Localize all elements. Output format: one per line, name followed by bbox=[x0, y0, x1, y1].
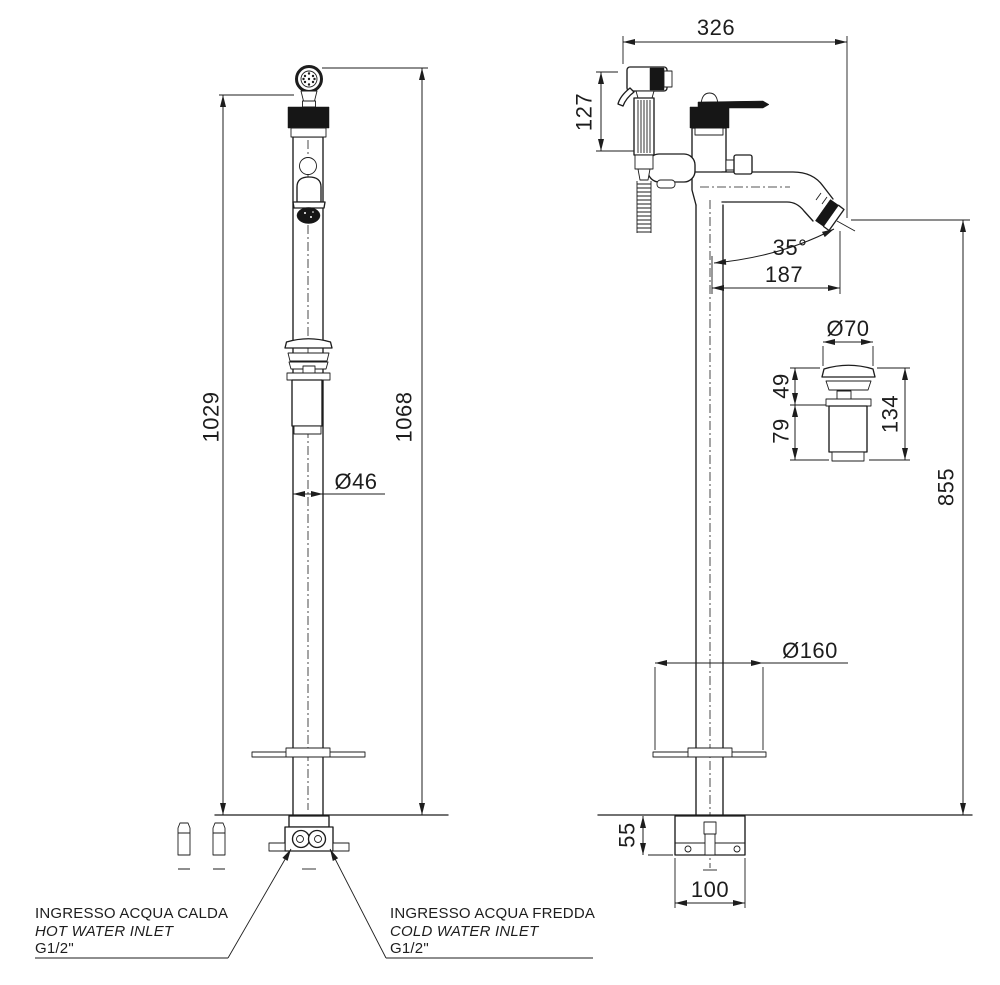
dim-base-cover-diameter: Ø160 bbox=[782, 638, 838, 663]
dim-drain-upper-height: 49 bbox=[769, 373, 794, 398]
front-escutcheon bbox=[252, 748, 365, 757]
dim-spout-reach: 187 bbox=[765, 262, 803, 287]
side-dimensions: 326 127 35° 187 855 Ø160 55 100 bbox=[572, 15, 970, 908]
cold-label-thread: G1/2" bbox=[390, 940, 429, 957]
drain-body bbox=[829, 406, 867, 452]
cold-leader-line bbox=[330, 849, 386, 958]
dim-base-width: 100 bbox=[691, 877, 729, 902]
front-base bbox=[269, 816, 349, 869]
side-escutcheon bbox=[653, 667, 766, 757]
side-cartridge-cap bbox=[690, 107, 729, 128]
front-handshower-icon bbox=[297, 67, 322, 108]
side-view: 326 127 35° 187 855 Ø160 55 100 bbox=[572, 15, 972, 908]
dim-overall-height: 1068 bbox=[392, 392, 417, 443]
lever-handle bbox=[698, 93, 769, 108]
drain-detail: Ø70 49 79 134 bbox=[769, 316, 910, 461]
front-cartridge-cap bbox=[288, 107, 329, 128]
cold-label-subtitle: COLD WATER INLET bbox=[390, 923, 540, 940]
hot-label-thread: G1/2" bbox=[35, 940, 74, 957]
dim-drain-lower-height: 79 bbox=[769, 418, 794, 443]
dim-overall-depth: 326 bbox=[697, 15, 735, 40]
dim-spout-angle: 35° bbox=[773, 235, 808, 260]
dim-base-height: 55 bbox=[615, 822, 640, 847]
drain-cap bbox=[822, 365, 875, 377]
side-spout bbox=[700, 172, 844, 231]
dim-height-to-shower-rest: 1029 bbox=[199, 392, 224, 443]
hot-label-title: INGRESSO ACQUA CALDA bbox=[35, 905, 228, 922]
cold-label-title: INGRESSO ACQUA FREDDA bbox=[390, 905, 595, 922]
side-handshower-icon bbox=[618, 67, 672, 233]
side-base bbox=[675, 816, 745, 870]
hot-leader-line bbox=[228, 849, 291, 958]
front-cap-collar bbox=[291, 128, 326, 137]
dim-spout-outlet-height: 855 bbox=[934, 468, 959, 506]
front-popup-waste bbox=[285, 339, 332, 434]
shower-bracket bbox=[648, 154, 695, 188]
drawing-canvas: 1029 1068 Ø46 bbox=[0, 0, 1000, 985]
dim-drain-cap-diameter: Ø70 bbox=[826, 316, 869, 341]
shower-hose-coil bbox=[637, 181, 651, 233]
front-view: 1029 1068 Ø46 bbox=[178, 67, 448, 870]
hot-water-label: INGRESSO ACQUA CALDA HOT WATER INLET G1/… bbox=[35, 849, 291, 958]
diverter-knob bbox=[726, 155, 752, 174]
hot-label-subtitle: HOT WATER INLET bbox=[35, 923, 175, 940]
side-column bbox=[696, 205, 723, 815]
front-spout-icon bbox=[293, 158, 325, 224]
cold-water-label: INGRESSO ACQUA FREDDA COLD WATER INLET G… bbox=[330, 849, 595, 958]
dim-hand-shower-length: 127 bbox=[572, 93, 597, 131]
fitting-pins bbox=[178, 823, 225, 869]
dim-column-diameter: Ø46 bbox=[334, 469, 377, 494]
faucet-technical-drawing: 1029 1068 Ø46 bbox=[0, 0, 1000, 985]
dim-drain-overall-height: 134 bbox=[878, 395, 903, 433]
